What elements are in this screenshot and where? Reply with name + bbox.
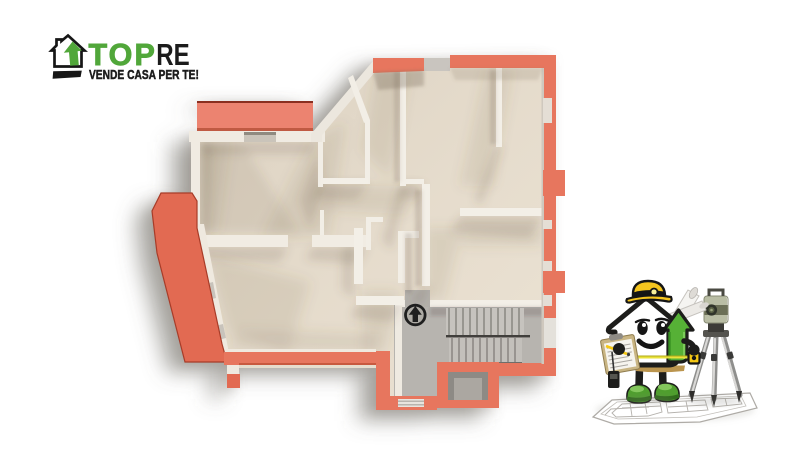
svg-text:RE: RE [156, 37, 189, 71]
svg-text:VENDE CASA PER TE!: VENDE CASA PER TE! [89, 69, 199, 82]
svg-text:TOP: TOP [89, 38, 157, 72]
